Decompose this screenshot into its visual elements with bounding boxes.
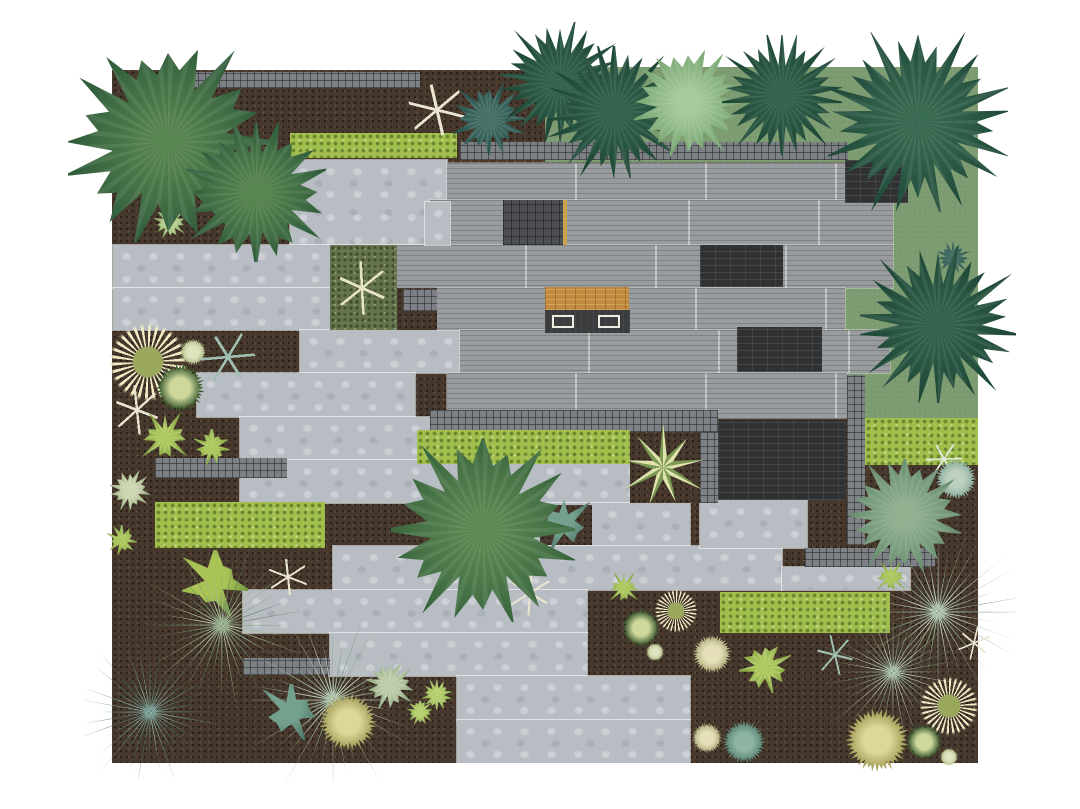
paving-slab-11	[330, 633, 587, 676]
cobble-strip-patio-left	[700, 432, 718, 503]
cobble-strip-right-vertical	[847, 375, 865, 545]
roof-deck-row-1	[447, 163, 848, 200]
skylight-dark-tile	[503, 200, 565, 245]
dead-twig-left-2	[268, 557, 308, 597]
ring-plant-br	[919, 676, 979, 736]
brick-patio	[718, 420, 845, 500]
bench-right	[598, 315, 620, 328]
roof-deck-row-2	[430, 200, 893, 245]
paving-slab-14	[700, 500, 807, 548]
hedge-bottomright	[720, 592, 890, 633]
garden-plan-canvas	[0, 0, 1080, 809]
paving-slab-12	[457, 676, 690, 720]
roof-deck-row-5	[460, 330, 890, 373]
ring-plant-mid	[654, 589, 698, 633]
hedge-left	[155, 502, 325, 548]
brick-patch-mid	[737, 327, 822, 372]
paving-slab-13	[457, 720, 690, 763]
roof-deck-row-4	[437, 288, 845, 330]
paving-slab-4	[300, 330, 465, 373]
roof-deck-row-3	[397, 245, 893, 288]
wood-deck-entry	[545, 287, 629, 310]
hedge-center	[417, 430, 630, 464]
brick-patch-upper	[700, 245, 783, 287]
concrete-pad-small	[425, 202, 450, 245]
skylight-trim	[563, 200, 567, 245]
cobble-strip-left	[155, 458, 287, 478]
cobble-square-moss	[403, 289, 437, 311]
cobble-strip-center	[430, 410, 718, 432]
bench-left	[552, 315, 574, 328]
